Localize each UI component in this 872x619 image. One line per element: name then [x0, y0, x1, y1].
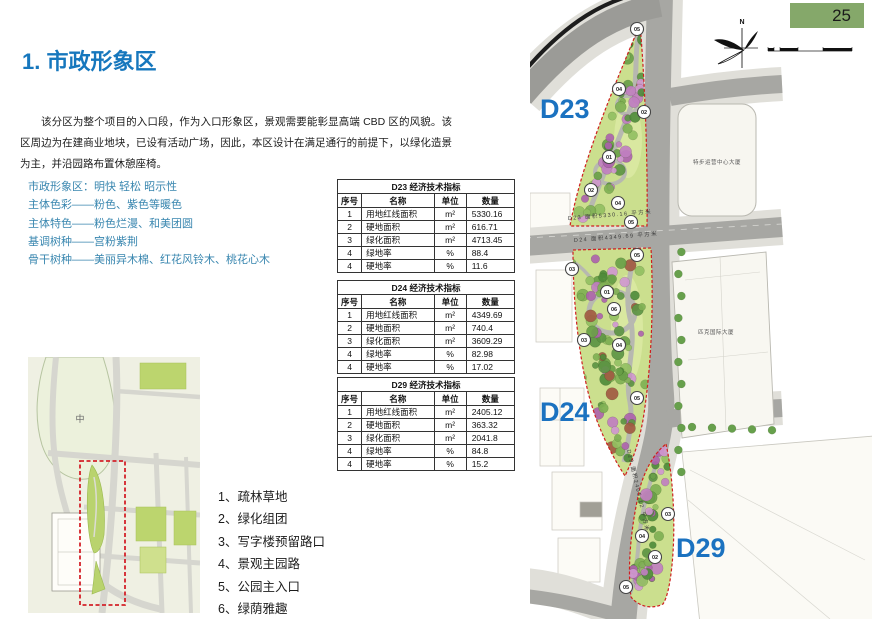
legend-item: 5、公园主入口: [218, 576, 325, 598]
table-row: 2硬地面积m²616.71: [338, 221, 515, 234]
table-cell: 3: [338, 432, 362, 445]
table-cell: m²: [434, 406, 466, 419]
column-header: 序号: [338, 392, 362, 406]
table-cell: m²: [434, 335, 466, 348]
table-cell: 4: [338, 361, 362, 374]
building-xtep-label: 特步运营中心大厦: [693, 158, 741, 166]
svg-text:06: 06: [611, 307, 617, 313]
table-row: 4硬地率%17.02: [338, 361, 515, 374]
zone-label-d23: D23: [540, 94, 590, 124]
table-cell: 4: [338, 348, 362, 361]
column-header: 数量: [466, 392, 514, 406]
table-cell: m²: [434, 221, 466, 234]
design-principles: 市政形象区：明快 轻松 昭示性 主体色彩——粉色、紫色等暖色 主体特色——粉色烂…: [28, 178, 270, 269]
table-cell: %: [434, 361, 466, 374]
table-cell: 2041.8: [466, 432, 514, 445]
indicator-table: D24 经济技术指标序号名称单位数量1用地红线面积m²4349.692硬地面积m…: [337, 280, 515, 374]
legend-item: 3、写字楼预留路口: [218, 531, 325, 553]
table-row: 1用地红线面积m²5330.16: [338, 208, 515, 221]
table-cell: 用地红线面积: [362, 309, 434, 322]
table-cell: 11.6: [466, 260, 514, 273]
table-cell: 4: [338, 260, 362, 273]
table-row: 4绿地率%82.98: [338, 348, 515, 361]
plan-marker: 02: [638, 106, 651, 119]
plan-marker: 05: [631, 23, 644, 36]
table-cell: 绿化面积: [362, 234, 434, 247]
table-row: 4绿地率%84.8: [338, 445, 515, 458]
table-cell: 绿化面积: [362, 335, 434, 348]
svg-text:01: 01: [604, 290, 610, 296]
plan-marker: 02: [585, 184, 598, 197]
table-cell: 绿地率: [362, 348, 434, 361]
table-cell: 3: [338, 335, 362, 348]
table-cell: 绿化面积: [362, 432, 434, 445]
table-cell: 绿地率: [362, 445, 434, 458]
svg-text:05: 05: [634, 253, 640, 259]
plan-marker: 05: [631, 392, 644, 405]
keymap-center-label: 中: [75, 413, 84, 424]
table-cell: 硬地面积: [362, 221, 434, 234]
principle-line: 主体特色——粉色烂漫、和美团圆: [28, 215, 270, 233]
table-row: 4绿地率%88.4: [338, 247, 515, 260]
table-cell: 616.71: [466, 221, 514, 234]
site-plan: 特步运营中心大厦 匹克国际大厦: [530, 0, 872, 619]
table-cell: 3: [338, 234, 362, 247]
plan-marker: 06: [608, 303, 621, 316]
column-header: 序号: [338, 194, 362, 208]
svg-text:05: 05: [634, 27, 640, 33]
table-cell: 绿地率: [362, 247, 434, 260]
table-cell: 4349.69: [466, 309, 514, 322]
scale-bar: [768, 47, 852, 51]
table-cell: 1: [338, 309, 362, 322]
plan-marker: 03: [578, 334, 591, 347]
column-header: 名称: [362, 295, 434, 309]
table-cell: 4: [338, 445, 362, 458]
table-cell: m²: [434, 432, 466, 445]
svg-text:05: 05: [634, 396, 640, 402]
document-page: 25 1. 市政形象区 该分区为整个项目的入口段，作为入口形象区，景观需要能彰显…: [0, 0, 872, 619]
table-cell: 硬地面积: [362, 419, 434, 432]
table-row: 3绿化面积m²4713.45: [338, 234, 515, 247]
table-cell: 82.98: [466, 348, 514, 361]
table-cell: 1: [338, 406, 362, 419]
plan-marker: 04: [613, 339, 626, 352]
table-cell: 硬地率: [362, 458, 434, 471]
svg-text:02: 02: [588, 188, 594, 194]
legend-item: 2、绿化组团: [218, 508, 325, 530]
table-row: 4硬地率%15.2: [338, 458, 515, 471]
table-cell: 4: [338, 247, 362, 260]
table-cell: %: [434, 247, 466, 260]
legend-item: 1、疏林草地: [218, 486, 325, 508]
table-title: D29 经济技术指标: [338, 378, 515, 392]
plan-marker: 02: [649, 551, 662, 564]
page-title: 1. 市政形象区: [22, 44, 156, 76]
svg-text:04: 04: [616, 87, 623, 93]
column-header: 单位: [434, 295, 466, 309]
indicator-table-d24: D24 经济技术指标序号名称单位数量1用地红线面积m²4349.692硬地面积m…: [337, 280, 515, 374]
table-cell: 740.4: [466, 322, 514, 335]
indicator-table: D23 经济技术指标序号名称单位数量1用地红线面积m²5330.162硬地面积m…: [337, 179, 515, 273]
table-row: 3绿化面积m²2041.8: [338, 432, 515, 445]
table-cell: m²: [434, 234, 466, 247]
table-cell: 2: [338, 322, 362, 335]
table-title: D24 经济技术指标: [338, 281, 515, 295]
table-cell: %: [434, 458, 466, 471]
plan-marker: 05: [625, 216, 638, 229]
principle-line: 主体色彩——粉色、紫色等暖色: [28, 196, 270, 214]
column-header: 序号: [338, 295, 362, 309]
table-row: 2硬地面积m²363.32: [338, 419, 515, 432]
table-cell: 2405.12: [466, 406, 514, 419]
table-cell: 2: [338, 419, 362, 432]
table-cell: 2: [338, 221, 362, 234]
svg-text:03: 03: [665, 512, 671, 518]
column-header: 单位: [434, 194, 466, 208]
compass-n-label: N: [739, 19, 744, 26]
plan-marker: 04: [636, 530, 649, 543]
svg-text:05: 05: [628, 220, 634, 226]
plan-marker: 04: [612, 197, 625, 210]
zone-label-d24: D24: [540, 397, 590, 427]
svg-text:02: 02: [652, 555, 658, 561]
table-cell: m²: [434, 419, 466, 432]
table-title: D23 经济技术指标: [338, 180, 515, 194]
principle-line: 基调树种——宫粉紫荆: [28, 233, 270, 251]
table-cell: 84.8: [466, 445, 514, 458]
plan-marker: 01: [601, 286, 614, 299]
svg-text:04: 04: [615, 201, 622, 207]
plan-marker: 03: [566, 263, 579, 276]
column-header: 单位: [434, 392, 466, 406]
table-cell: %: [434, 260, 466, 273]
plan-legend: 1、疏林草地 2、绿化组团 3、写字楼预留路口 4、景观主园路 5、公园主入口 …: [218, 486, 325, 619]
table-cell: 17.02: [466, 361, 514, 374]
svg-text:05: 05: [623, 585, 629, 591]
column-header: 数量: [466, 194, 514, 208]
table-cell: 15.2: [466, 458, 514, 471]
table-row: 1用地红线面积m²4349.69: [338, 309, 515, 322]
column-header: 数量: [466, 295, 514, 309]
indicator-table: D29 经济技术指标序号名称单位数量1用地红线面积m²2405.122硬地面积m…: [337, 377, 515, 471]
legend-item: 6、绿荫雅趣: [218, 598, 325, 619]
svg-text:03: 03: [569, 267, 575, 273]
table-cell: 用地红线面积: [362, 406, 434, 419]
plan-marker: 05: [620, 581, 633, 594]
svg-text:03: 03: [581, 338, 587, 344]
principle-line: 骨干树种——美丽异木棉、红花风铃木、桃花心木: [28, 251, 270, 269]
table-cell: 4: [338, 458, 362, 471]
table-row: 1用地红线面积m²2405.12: [338, 406, 515, 419]
zone-label-d29: D29: [676, 533, 726, 563]
indicator-table-d23: D23 经济技术指标序号名称单位数量1用地红线面积m²5330.162硬地面积m…: [337, 179, 515, 273]
table-row: 2硬地面积m²740.4: [338, 322, 515, 335]
table-cell: 1: [338, 208, 362, 221]
location-keymap: 中: [28, 357, 200, 613]
table-row: 4硬地率%11.6: [338, 260, 515, 273]
table-cell: 用地红线面积: [362, 208, 434, 221]
table-cell: 88.4: [466, 247, 514, 260]
table-cell: 3609.29: [466, 335, 514, 348]
north-compass: N: [714, 19, 758, 68]
table-cell: %: [434, 348, 466, 361]
plan-marker: 01: [603, 151, 616, 164]
table-cell: 363.32: [466, 419, 514, 432]
column-header: 名称: [362, 194, 434, 208]
table-cell: 5330.16: [466, 208, 514, 221]
table-row: 3绿化面积m²3609.29: [338, 335, 515, 348]
table-cell: m²: [434, 322, 466, 335]
building-peak-label: 匹克国际大厦: [698, 328, 734, 336]
table-cell: m²: [434, 208, 466, 221]
intro-paragraph: 该分区为整个项目的入口段，作为入口形象区，景观需要能彰显高端 CBD 区的风貌。…: [20, 112, 452, 175]
legend-item: 4、景观主园路: [218, 553, 325, 575]
table-cell: m²: [434, 309, 466, 322]
plan-marker: 03: [662, 508, 675, 521]
svg-text:02: 02: [641, 110, 647, 116]
table-cell: 硬地率: [362, 361, 434, 374]
plan-marker: 04: [613, 83, 626, 96]
table-cell: 硬地面积: [362, 322, 434, 335]
principle-line: 市政形象区：明快 轻松 昭示性: [28, 178, 270, 196]
plan-marker: 05: [631, 249, 644, 262]
svg-text:04: 04: [639, 534, 646, 540]
block-bottom-right: [682, 436, 872, 619]
svg-text:04: 04: [616, 343, 623, 349]
table-cell: 硬地率: [362, 260, 434, 273]
table-cell: %: [434, 445, 466, 458]
svg-text:01: 01: [606, 155, 612, 161]
indicator-table-d29: D29 经济技术指标序号名称单位数量1用地红线面积m²2405.122硬地面积m…: [337, 377, 515, 471]
table-cell: 4713.45: [466, 234, 514, 247]
column-header: 名称: [362, 392, 434, 406]
